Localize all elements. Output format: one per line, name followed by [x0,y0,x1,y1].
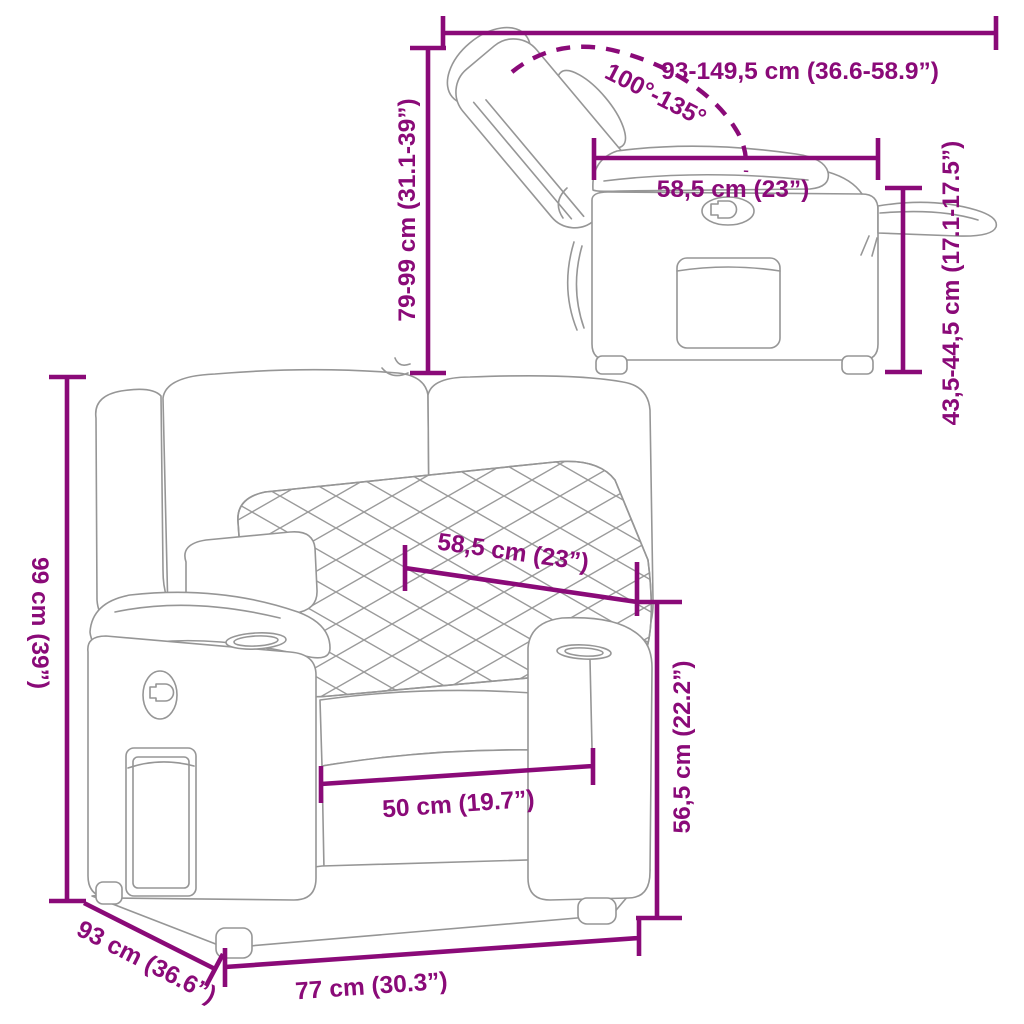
label-footrest-height: 43,5-44,5 cm (17.1-17.5”) [938,141,965,426]
label-side-depth-range: 93-149,5 cm (36.6-58.9”) [661,58,939,85]
front-right-armrest [528,618,652,900]
front-pocket [126,748,196,896]
front-view-illustration [88,358,653,958]
side-pocket [677,258,780,348]
label-front-height: 99 cm (39”) [26,557,53,689]
product-dimension-diagram: 93-149,5 cm (36.6-58.9”) 100°-135° 79-99… [0,0,1024,1024]
front-left-armrest [88,592,330,900]
dim-line-front-height [49,377,86,901]
diagram-canvas: 93-149,5 cm (36.6-58.9”) 100°-135° 79-99… [0,0,1024,1024]
label-front-seatback-height: 56,5 cm (22.2”) [669,661,696,834]
label-side-height-range: 79-99 cm (31.1-39”) [394,98,421,321]
label-front-width: 77 cm (30.3”) [294,968,448,1006]
side-footrest [861,202,996,256]
front-release-lever-icon [143,671,177,719]
label-side-seat-width: 58,5 cm (23”) [657,176,810,203]
